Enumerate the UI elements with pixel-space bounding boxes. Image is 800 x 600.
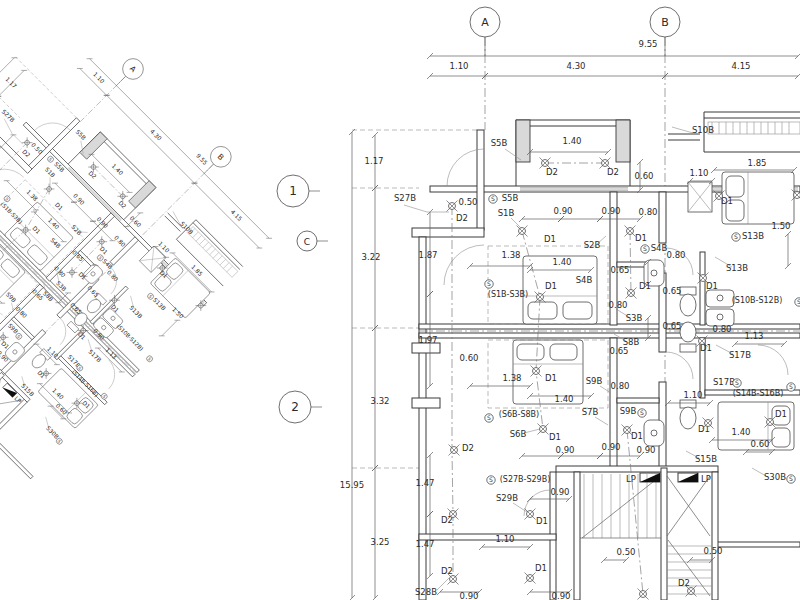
row-bubbles: 1C2 xyxy=(277,175,328,423)
drawing-sheet: 9.551.104.304.151.173.223.3215.953.251.8… xyxy=(0,0,800,600)
row-bubble-2: 2 xyxy=(279,391,322,423)
row-bubble-label: C xyxy=(304,237,310,247)
floor-plan-right xyxy=(340,7,800,600)
row-bubble-1: 1 xyxy=(277,175,320,207)
row-bubble-label: 2 xyxy=(291,400,299,414)
floorplan-sheet: 9.551.104.304.151.173.223.3215.953.251.8… xyxy=(0,0,800,600)
row-bubble-label: 1 xyxy=(289,184,297,198)
row-bubble-C: C xyxy=(297,231,328,251)
floor-plan-left-rotated xyxy=(0,0,296,507)
